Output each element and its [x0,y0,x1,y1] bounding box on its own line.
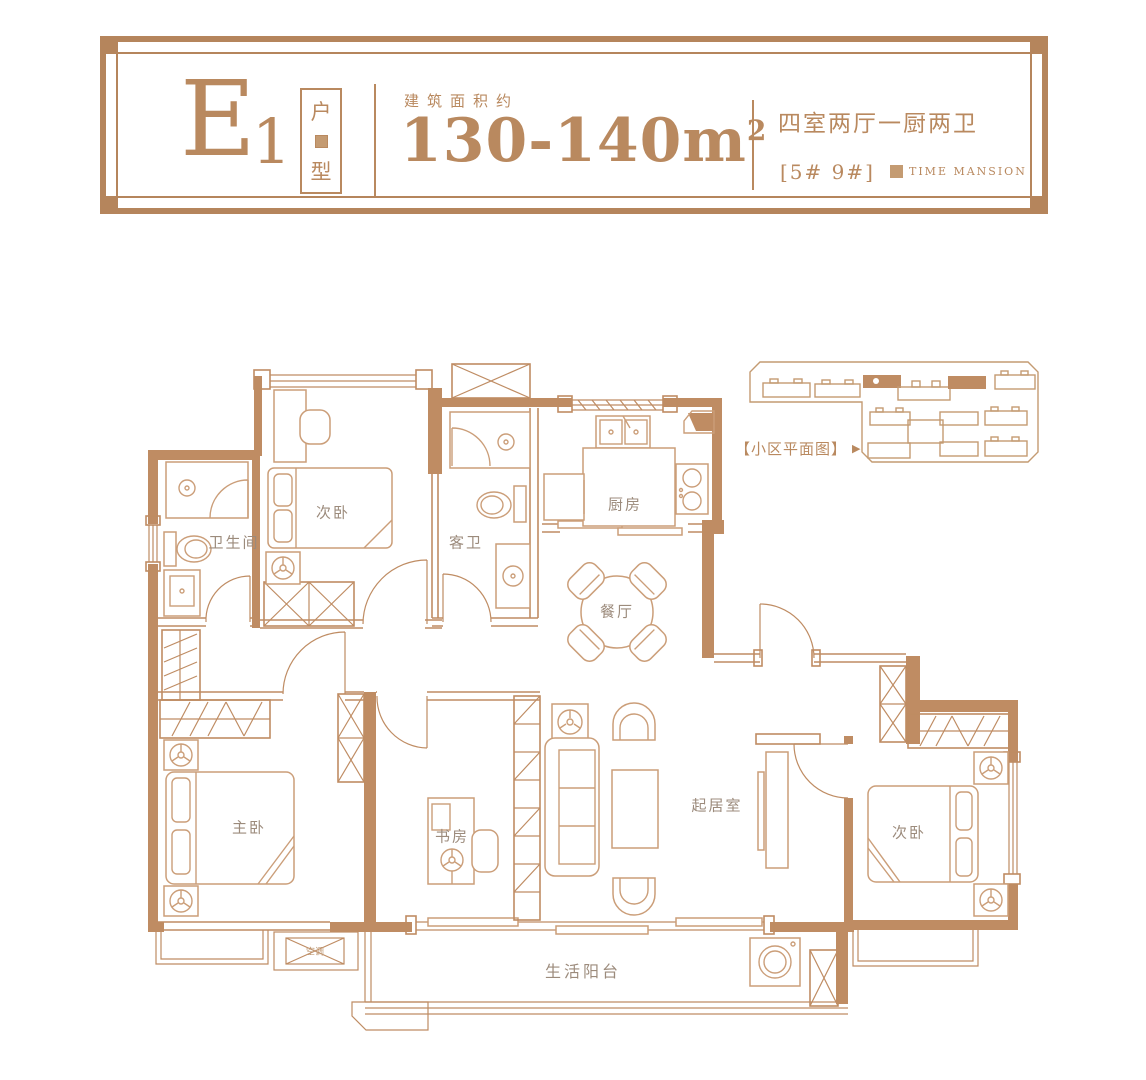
balcony-sliding-door [406,916,774,934]
study-bookcase [514,696,540,920]
site-building [868,443,910,458]
wall-shaft [338,694,364,782]
site-building [815,384,860,397]
site-plan-caption: 【小区平面图】 ▶ [735,438,861,459]
balcony-fixtures [750,938,800,986]
guest-bath-door [443,574,491,622]
armchair [613,878,655,915]
chair [300,410,330,444]
toilet-tank [164,532,176,566]
site-building-highlight [863,375,901,388]
room-label-bedroom-top: 次卧 [316,502,350,523]
entry-door [754,604,820,666]
master-furniture [164,740,294,916]
site-building [898,387,950,400]
site-building [985,441,1027,456]
living-furniture [545,703,788,915]
fridge [544,474,584,520]
room-label-living: 起居室 [691,795,742,816]
tv-console [766,752,788,868]
bedroom2-bay-window [853,930,978,966]
floorplan-sheet: E1 户 型 建筑面积约 130-140m2 四室两厅一厨两卫 [5# 9#] … [0,0,1146,1080]
room-label-study: 书房 [435,826,469,847]
bedroom1-window [254,370,432,389]
site-building-highlight [948,376,986,389]
coffee-table [612,770,658,848]
room-label-dining: 餐厅 [600,601,634,622]
room-label-ac: 空调 [306,945,324,958]
site-plan-caption-text: 【小区平面图】 [735,438,847,459]
site-building [940,412,978,425]
room-label-guest-bath: 客卫 [449,532,483,553]
hall-cabinet [162,630,200,700]
site-building [995,375,1035,389]
entry-shaft [880,666,906,742]
vanity [496,544,530,608]
room-label-bathroom: 卫生间 [208,532,259,553]
room-label-master: 主卧 [232,817,266,838]
arrow-right-icon: ▶ [852,442,861,455]
washing-machine [750,938,800,986]
site-amenity [908,420,943,443]
kitchen-sink-icon [596,416,650,448]
master-closet [160,700,270,738]
bedroom2-furniture [868,752,1008,916]
kitchen-window [558,396,677,412]
room-label-balcony: 生活阳台 [545,958,621,982]
guest-bath-fixtures [450,412,530,608]
site-building [940,442,978,456]
shower-stall [166,462,248,518]
room-label-bedroom-right: 次卧 [892,822,926,843]
duct-shaft [452,364,530,398]
bedroom1-door [363,560,427,624]
master-door [283,632,345,694]
chair [472,830,498,872]
bed [166,772,294,884]
study-door [377,696,427,748]
bedroom1-furniture [266,390,392,584]
room-label-kitchen: 厨房 [608,494,642,515]
site-building [985,411,1027,425]
site-building [870,412,910,425]
corner-hood [688,413,712,431]
balcony-ac-box [810,950,838,1006]
master-bay-window [156,930,268,964]
bathroom-window [146,516,160,571]
bedroom2-door [794,744,848,798]
toilet-tank [514,486,526,522]
tv-icon [758,772,764,850]
bathroom-door [206,576,250,622]
armchair [613,703,655,740]
site-building [763,383,810,397]
bedroom2-wardrobe [908,714,1010,748]
floorplan-drawing [0,0,1146,1080]
sofa [545,738,599,876]
